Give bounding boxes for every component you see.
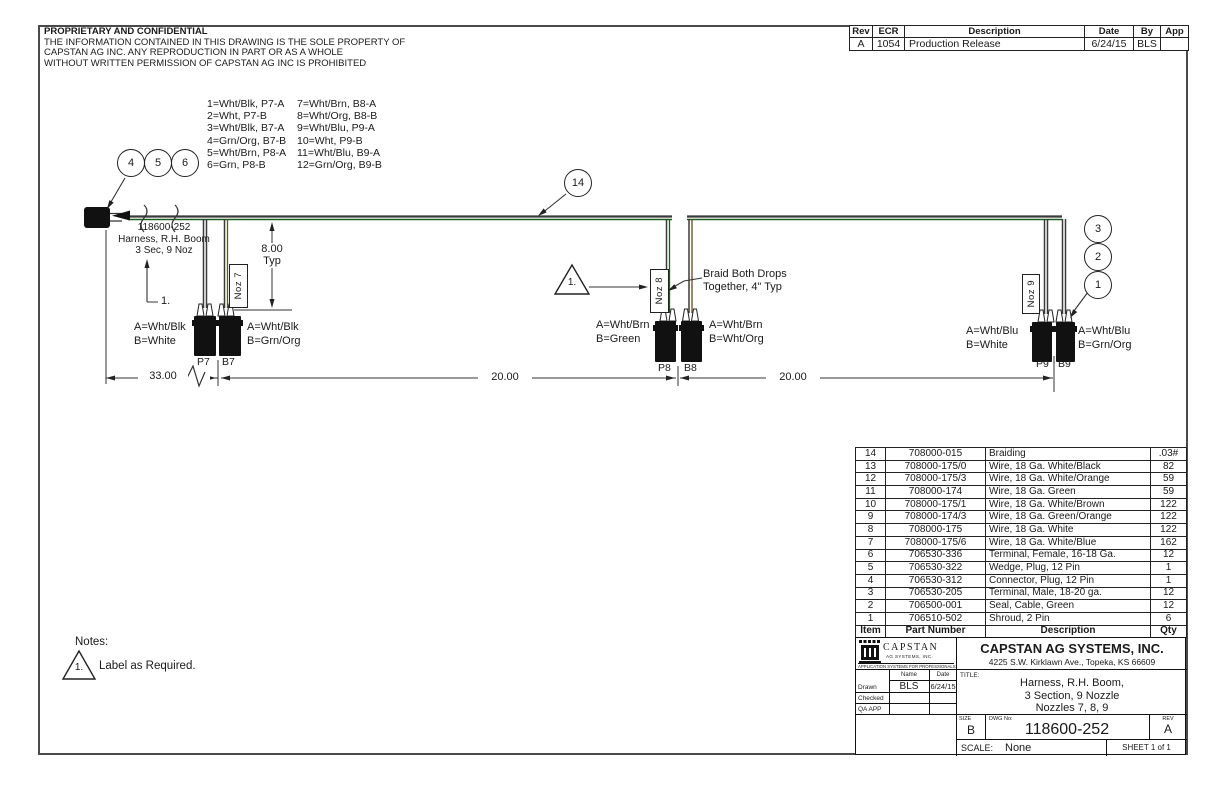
bom-row: 9708000-174/3Wire, 18 Ga. Green/Orange12… (856, 511, 1187, 524)
bom-row: 14708000-015Braiding.03# (856, 448, 1187, 461)
by-value: BLS (1134, 38, 1161, 51)
harness-callout: 118600-252 Harness, R.H. Boom 3 Sec, 9 N… (112, 222, 216, 257)
bom-item: 7 (856, 536, 886, 549)
bom-header-qty: Qty (1151, 625, 1187, 637)
bom-part: 706530-322 (886, 562, 986, 575)
date-header: Date (1085, 26, 1134, 38)
dim-8-typ-label: 8.00 Typ (248, 243, 296, 268)
bom-part: 708000-015 (886, 448, 986, 461)
bom-qty: 12 (1151, 587, 1187, 600)
title-line3: Nozzles 7, 8, 9 (957, 702, 1187, 715)
p8-wire-a: A=Wht/Brn (596, 319, 650, 331)
p7-wire-b: B=White (134, 335, 176, 347)
harness-config: 3 Sec, 9 Noz (112, 245, 216, 257)
bom-desc: Wire, 18 Ga. White/Orange (986, 473, 1151, 486)
bom-qty: 59 (1151, 473, 1187, 486)
bom-desc: Terminal, Male, 18-20 ga. (986, 587, 1151, 600)
harness-leader-note: 1. (161, 295, 170, 307)
size-value: B (957, 724, 985, 737)
b8-wire-a: A=Wht/Brn (709, 319, 763, 331)
noz7-label: Noz 7 (233, 272, 244, 299)
bom-header-desc: Description (986, 625, 1151, 637)
bom-desc: Connector, Plug, 12 Pin (986, 574, 1151, 587)
signature-grid: Name Date Drawn BLS 6/24/15 Checked QA A… (856, 670, 957, 715)
bom-part: 708000-175 (886, 524, 986, 537)
bom-qty: 12 (1151, 600, 1187, 613)
legend-item: 7=Wht/Brn, B8-A (297, 98, 382, 110)
bom-item: 1 (856, 612, 886, 625)
notes-text: Label as Required. (99, 660, 196, 673)
legend-item: 9=Wht/Blu, P9-A (297, 122, 382, 134)
braid-note-line1: Braid Both Drops (703, 268, 787, 280)
notes-flag-text: 1. (68, 662, 90, 673)
bom-table: 14708000-015Braiding.03# 13708000-175/0W… (855, 447, 1187, 638)
legend-item: 12=Grn/Org, B9-B (297, 159, 382, 171)
bom-row: 7708000-175/6Wire, 18 Ga. White/Blue162 (856, 536, 1187, 549)
company-address: 4225 S.W. Kirklawn Ave., Topeka, KS 6660… (957, 657, 1187, 667)
scale-label: SCALE: (961, 743, 993, 753)
main-bus-wire (128, 217, 1062, 220)
legend-item: 2=Wht, P7-B (207, 110, 286, 122)
proprietary-notice: PROPRIETARY AND CONFIDENTIAL THE INFORMA… (44, 27, 405, 70)
title-line1: Harness, R.H. Boom, (957, 677, 1187, 690)
noz9-label-box: Noz 9 (1022, 274, 1040, 314)
bom-qty: 59 (1151, 486, 1187, 499)
rev-header: Rev (850, 26, 873, 38)
bom-header-row: ItemPart NumberDescriptionQty (856, 625, 1187, 637)
bom-item: 6 (856, 549, 886, 562)
legend-item: 11=Wht/Blu, B9-A (297, 147, 382, 159)
bom-qty: 122 (1151, 511, 1187, 524)
bom-row: 2706500-001Seal, Cable, Green12 (856, 600, 1187, 613)
empty-cell (856, 715, 957, 756)
b9-wire-b: B=Grn/Org (1078, 339, 1132, 351)
bom-part: 706500-001 (886, 600, 986, 613)
size-dwg-rev-row: SIZE B DWG No: 118600-252 REV A (957, 715, 1187, 740)
drop-wires (204, 219, 1066, 314)
bom-part: 708000-174/3 (886, 511, 986, 524)
bom-row: 13708000-175/0Wire, 18 Ga. White/Black82 (856, 460, 1187, 473)
bom-qty: 122 (1151, 498, 1187, 511)
legend-item: 8=Wht/Org, B8-B (297, 110, 382, 122)
p8-name: P8 (658, 363, 671, 375)
bom-row: 6706530-336Terminal, Female, 16-18 Ga.12 (856, 549, 1187, 562)
balloon-6: 6 (171, 149, 199, 177)
bom-qty: .03# (1151, 448, 1187, 461)
bom-part: 706530-205 (886, 587, 986, 600)
bom-item: 13 (856, 460, 886, 473)
capstan-logo-icon (859, 640, 881, 664)
company-cell: CAPSTAN AG SYSTEMS, INC. 4225 S.W. Kirkl… (957, 638, 1187, 670)
balloon-1: 1 (1084, 271, 1112, 299)
bom-part: 708000-174 (886, 486, 986, 499)
app-value (1161, 38, 1189, 51)
p9-name: P9 (1036, 359, 1049, 371)
bom-desc: Wire, 18 Ga. White (986, 524, 1151, 537)
bom-row: 5706530-322Wedge, Plug, 12 Pin1 (856, 562, 1187, 575)
rev-value: A (850, 38, 873, 51)
bom-row: 1706510-502Shroud, 2 Pin6 (856, 612, 1187, 625)
qa-app-label: QA APP (858, 706, 882, 713)
bom-desc: Terminal, Female, 16-18 Ga. (986, 549, 1151, 562)
bom-part: 706530-336 (886, 549, 986, 562)
revision-table: Rev ECR Description Date By App A 1054 P… (849, 25, 1189, 51)
legend-item: 6=Grn, P8-B (207, 159, 286, 171)
bom-desc: Seal, Cable, Green (986, 600, 1151, 613)
p7-name: P7 (197, 357, 210, 369)
app-header: App (1161, 26, 1189, 38)
b9-name: B9 (1058, 359, 1071, 371)
ecr-value: 1054 (873, 38, 905, 51)
bom-desc: Wedge, Plug, 12 Pin (986, 562, 1151, 575)
bom-qty: 82 (1151, 460, 1187, 473)
bom-qty: 12 (1151, 549, 1187, 562)
logo-sub: AG SYSTEMS, INC. (886, 654, 933, 659)
balloon-5: 5 (144, 149, 172, 177)
bom-item: 2 (856, 600, 886, 613)
harness-name: Harness, R.H. Boom (112, 234, 216, 246)
company-name: CAPSTAN AG SYSTEMS, INC. (957, 641, 1187, 656)
drawn-name: BLS (889, 681, 929, 692)
ecr-header: ECR (873, 26, 905, 38)
logo-cell: CAPSTAN AG SYSTEMS, INC. APPLICATION SYS… (856, 638, 957, 670)
date-value: 6/24/15 (1085, 38, 1134, 51)
title-cell: TITLE: Harness, R.H. Boom, 3 Section, 9 … (957, 670, 1187, 715)
noz9-label: Noz 9 (1026, 280, 1037, 307)
bom-qty: 122 (1151, 524, 1187, 537)
bom-item: 8 (856, 524, 886, 537)
legend-item: 4=Grn/Org, B7-B (207, 135, 286, 147)
bom-qty: 6 (1151, 612, 1187, 625)
harness-part-number: 118600-252 (112, 222, 216, 234)
legend-item: 5=Wht/Brn, P8-A (207, 147, 286, 159)
p8-wire-b: B=Green (596, 333, 640, 345)
bom-row: 10708000-175/1Wire, 18 Ga. White/Brown12… (856, 498, 1187, 511)
description-value: Production Release (905, 38, 1085, 51)
bom-desc: Wire, 18 Ga. White/Blue (986, 536, 1151, 549)
bom-desc: Wire, 18 Ga. White/Black (986, 460, 1151, 473)
notes-heading: Notes: (75, 636, 108, 649)
bom-qty: 1 (1151, 574, 1187, 587)
p9-wire-a: A=Wht/Blu (966, 325, 1018, 337)
legend-item: 1=Wht/Blk, P7-A (207, 98, 286, 110)
b9-wire-a: A=Wht/Blu (1078, 325, 1130, 337)
bom-qty: 162 (1151, 536, 1187, 549)
logo-tagline: APPLICATION SYSTEMS FOR PROFESSIONALS (858, 663, 954, 670)
scale-sheet-row: SCALE: None SHEET 1 of 1 (957, 740, 1187, 756)
bom-part: 706510-502 (886, 612, 986, 625)
bom-item: 9 (856, 511, 886, 524)
bom-desc: Braiding (986, 448, 1151, 461)
proprietary-line: WITHOUT WRITTEN PERMISSION OF CAPSTAN AG… (44, 59, 405, 70)
dim-8-typ: Typ (251, 255, 293, 267)
legend-item: 10=Wht, P9-B (297, 135, 382, 147)
bom-item: 3 (856, 587, 886, 600)
bom-row: 12708000-175/3Wire, 18 Ga. White/Orange5… (856, 473, 1187, 486)
drawn-label: Drawn (858, 684, 877, 691)
bom-part: 708000-175/3 (886, 473, 986, 486)
bom-part: 708000-175/6 (886, 536, 986, 549)
title-line2: 3 Section, 9 Nozzle (957, 690, 1187, 703)
b7-wire-a: A=Wht/Blk (247, 321, 299, 333)
bom-row: 8708000-175Wire, 18 Ga. White122 (856, 524, 1187, 537)
balloon-14: 14 (564, 169, 592, 197)
bom-item: 11 (856, 486, 886, 499)
logo-name: CAPSTAN (883, 642, 938, 653)
rev-value: A (1149, 723, 1187, 736)
bom-row: 11708000-174Wire, 18 Ga. Green59 (856, 486, 1187, 499)
p9-wire-b: B=White (966, 339, 1008, 351)
bom-part: 706530-312 (886, 574, 986, 587)
dim-20-left: 20.00 (478, 371, 532, 383)
bom-item: 12 (856, 473, 886, 486)
b8-wire-b: B=Wht/Org (709, 333, 764, 345)
noz8-label: Noz 8 (654, 277, 665, 304)
wire-legend-col2: 7=Wht/Brn, B8-A 8=Wht/Org, B8-B 9=Wht/Bl… (297, 98, 382, 171)
b7-wire-b: B=Grn/Org (247, 335, 301, 347)
bom-row: 3706530-205Terminal, Male, 18-20 ga.12 (856, 587, 1187, 600)
dim-33: 33.00 (138, 370, 188, 382)
sheet-value: SHEET 1 of 1 (1106, 744, 1187, 753)
date-column-label: Date (929, 672, 957, 679)
bom-desc: Wire, 18 Ga. Green/Orange (986, 511, 1151, 524)
scale-value: None (1005, 742, 1031, 754)
drawing-title: Harness, R.H. Boom, 3 Section, 9 Nozzle … (957, 677, 1187, 715)
bom-header-part: Part Number (886, 625, 986, 637)
bom-item: 4 (856, 574, 886, 587)
bom-row: 4706530-312Connector, Plug, 12 Pin1 (856, 574, 1187, 587)
balloon-4: 4 (117, 149, 145, 177)
bom-part: 708000-175/1 (886, 498, 986, 511)
b8-name: B8 (684, 363, 697, 375)
checked-label: Checked (858, 695, 884, 702)
noz7-label-box: Noz 7 (229, 264, 248, 308)
bom-qty: 1 (1151, 562, 1187, 575)
dwg-no-value: 118600-252 (985, 721, 1149, 739)
name-column-label: Name (889, 672, 929, 679)
balloon-3: 3 (1084, 215, 1112, 243)
bom-item: 5 (856, 562, 886, 575)
b7-name: B7 (222, 357, 235, 369)
by-header: By (1134, 26, 1161, 38)
bom-item: 14 (856, 448, 886, 461)
bom-part: 708000-175/0 (886, 460, 986, 473)
legend-item: 3=Wht/Blk, B7-A (207, 122, 286, 134)
p7-wire-a: A=Wht/Blk (134, 321, 186, 333)
bom-header-item: Item (856, 625, 886, 637)
wire-legend-col1: 1=Wht/Blk, P7-A 2=Wht, P7-B 3=Wht/Blk, B… (207, 98, 286, 171)
mid-flag-text: 1. (562, 277, 582, 288)
noz8-label-box: Noz 8 (650, 269, 669, 313)
bom-desc: Shroud, 2 Pin (986, 612, 1151, 625)
description-header: Description (905, 26, 1085, 38)
balloon-2: 2 (1084, 243, 1112, 271)
braid-note-line2: Together, 4" Typ (703, 281, 782, 293)
title-block: CAPSTAN AG SYSTEMS, INC. APPLICATION SYS… (855, 637, 1186, 755)
bom-item: 10 (856, 498, 886, 511)
bom-desc: Wire, 18 Ga. White/Brown (986, 498, 1151, 511)
bom-desc: Wire, 18 Ga. Green (986, 486, 1151, 499)
drawn-date: 6/24/15 (929, 683, 957, 691)
dim-8-value: 8.00 (251, 243, 293, 255)
dim-20-right: 20.00 (766, 371, 820, 383)
size-label: SIZE (959, 716, 971, 722)
